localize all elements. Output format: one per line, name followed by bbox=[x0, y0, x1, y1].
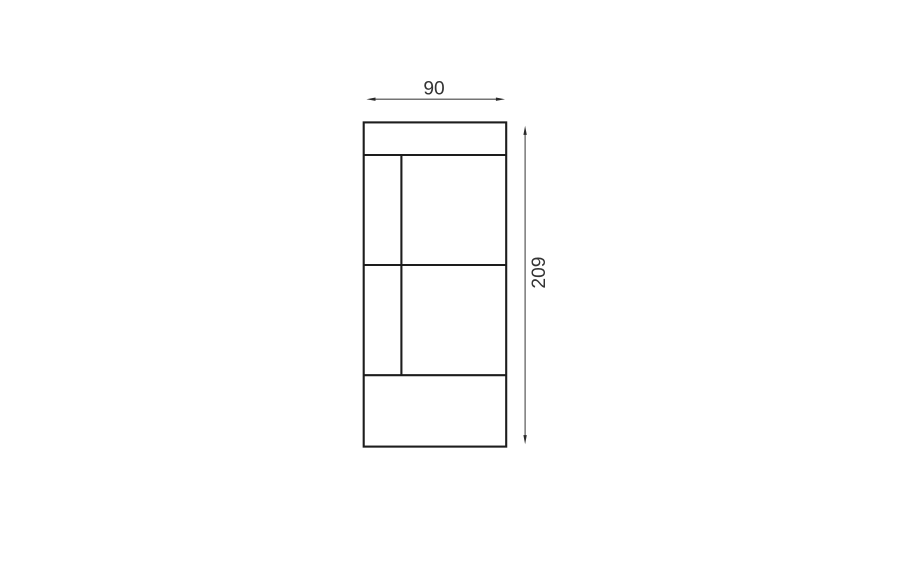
svg-text:90: 90 bbox=[423, 78, 444, 99]
svg-text:209: 209 bbox=[529, 257, 550, 289]
